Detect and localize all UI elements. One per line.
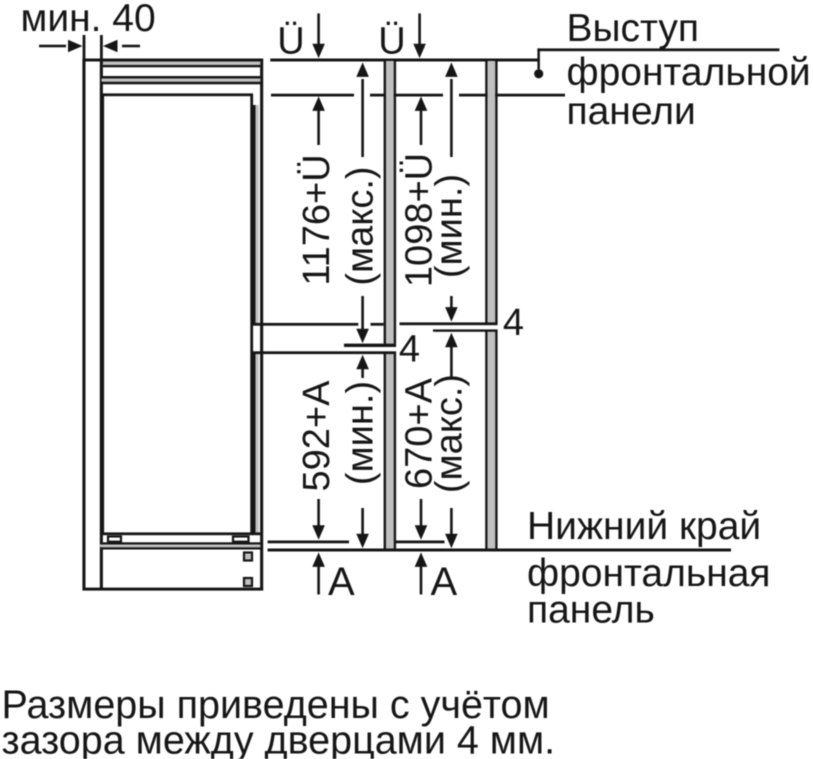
svg-text:(макс.): (макс.): [428, 374, 470, 493]
svg-text:1176+Ü: 1176+Ü: [296, 154, 338, 285]
svg-text:панель: панель: [527, 589, 655, 632]
svg-text:(мин.): (мин.): [340, 381, 382, 485]
svg-text:4: 4: [503, 302, 524, 344]
svg-text:Нижний край: Нижний край: [527, 505, 761, 548]
svg-text:(макс.): (макс.): [340, 166, 382, 285]
svg-text:Выступ: Выступ: [567, 7, 699, 50]
svg-text:панели: панели: [567, 90, 696, 133]
svg-text:зазора между дверцами 4 мм.: зазора между дверцами 4 мм.: [2, 719, 556, 759]
svg-text:мин. 40: мин. 40: [21, 0, 156, 40]
svg-text:A: A: [328, 560, 355, 604]
svg-text:фронтальной: фронтальной: [567, 51, 811, 94]
svg-text:(мин.): (мин.): [428, 174, 470, 278]
svg-text:Ü: Ü: [277, 20, 304, 62]
svg-text:592+A: 592+A: [296, 380, 338, 492]
svg-text:Ü: Ü: [378, 20, 405, 62]
svg-text:4: 4: [399, 329, 420, 371]
svg-text:A: A: [431, 560, 458, 604]
